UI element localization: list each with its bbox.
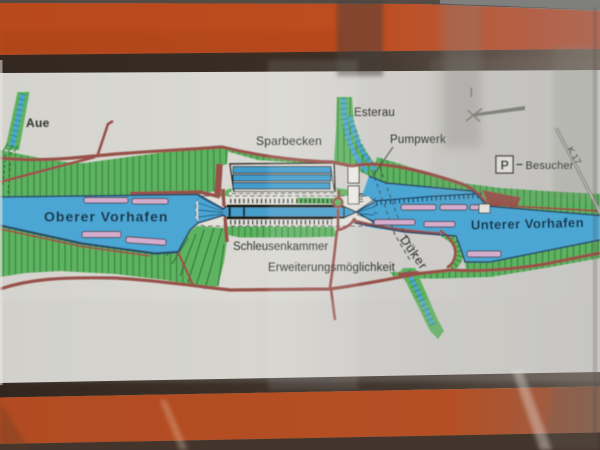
svg-text:Esterau: Esterau	[354, 107, 395, 119]
svg-text:Oberer Vorhafen: Oberer Vorhafen	[44, 209, 168, 225]
svg-text:Unterer Vorhafen: Unterer Vorhafen	[471, 215, 585, 233]
svg-text:Aue: Aue	[26, 116, 50, 130]
